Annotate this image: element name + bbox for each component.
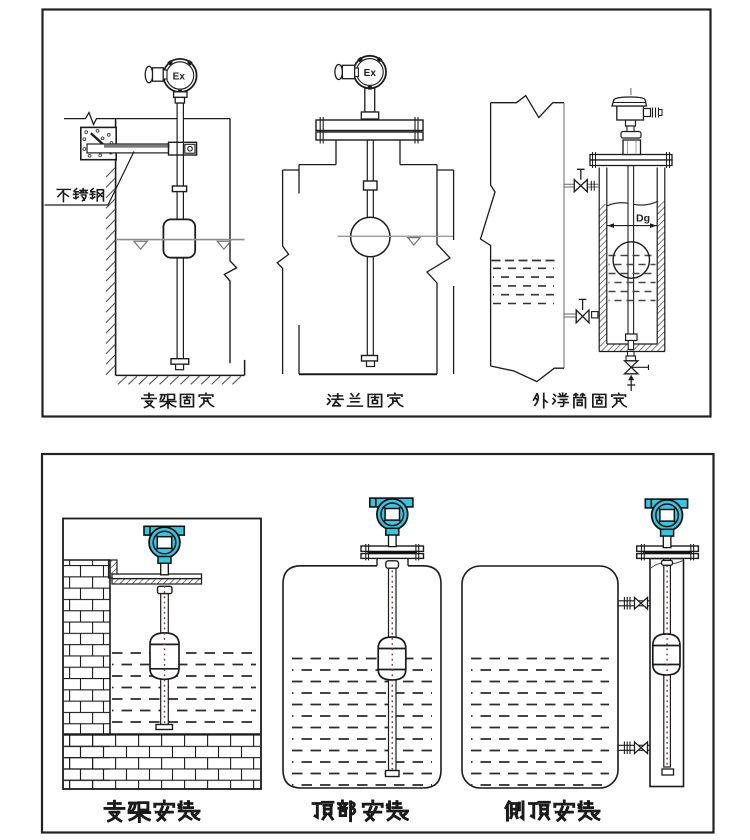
svg-text:Dg: Dg	[636, 213, 650, 225]
svg-text:Ex: Ex	[173, 71, 186, 82]
svg-text:Ex: Ex	[364, 68, 377, 79]
